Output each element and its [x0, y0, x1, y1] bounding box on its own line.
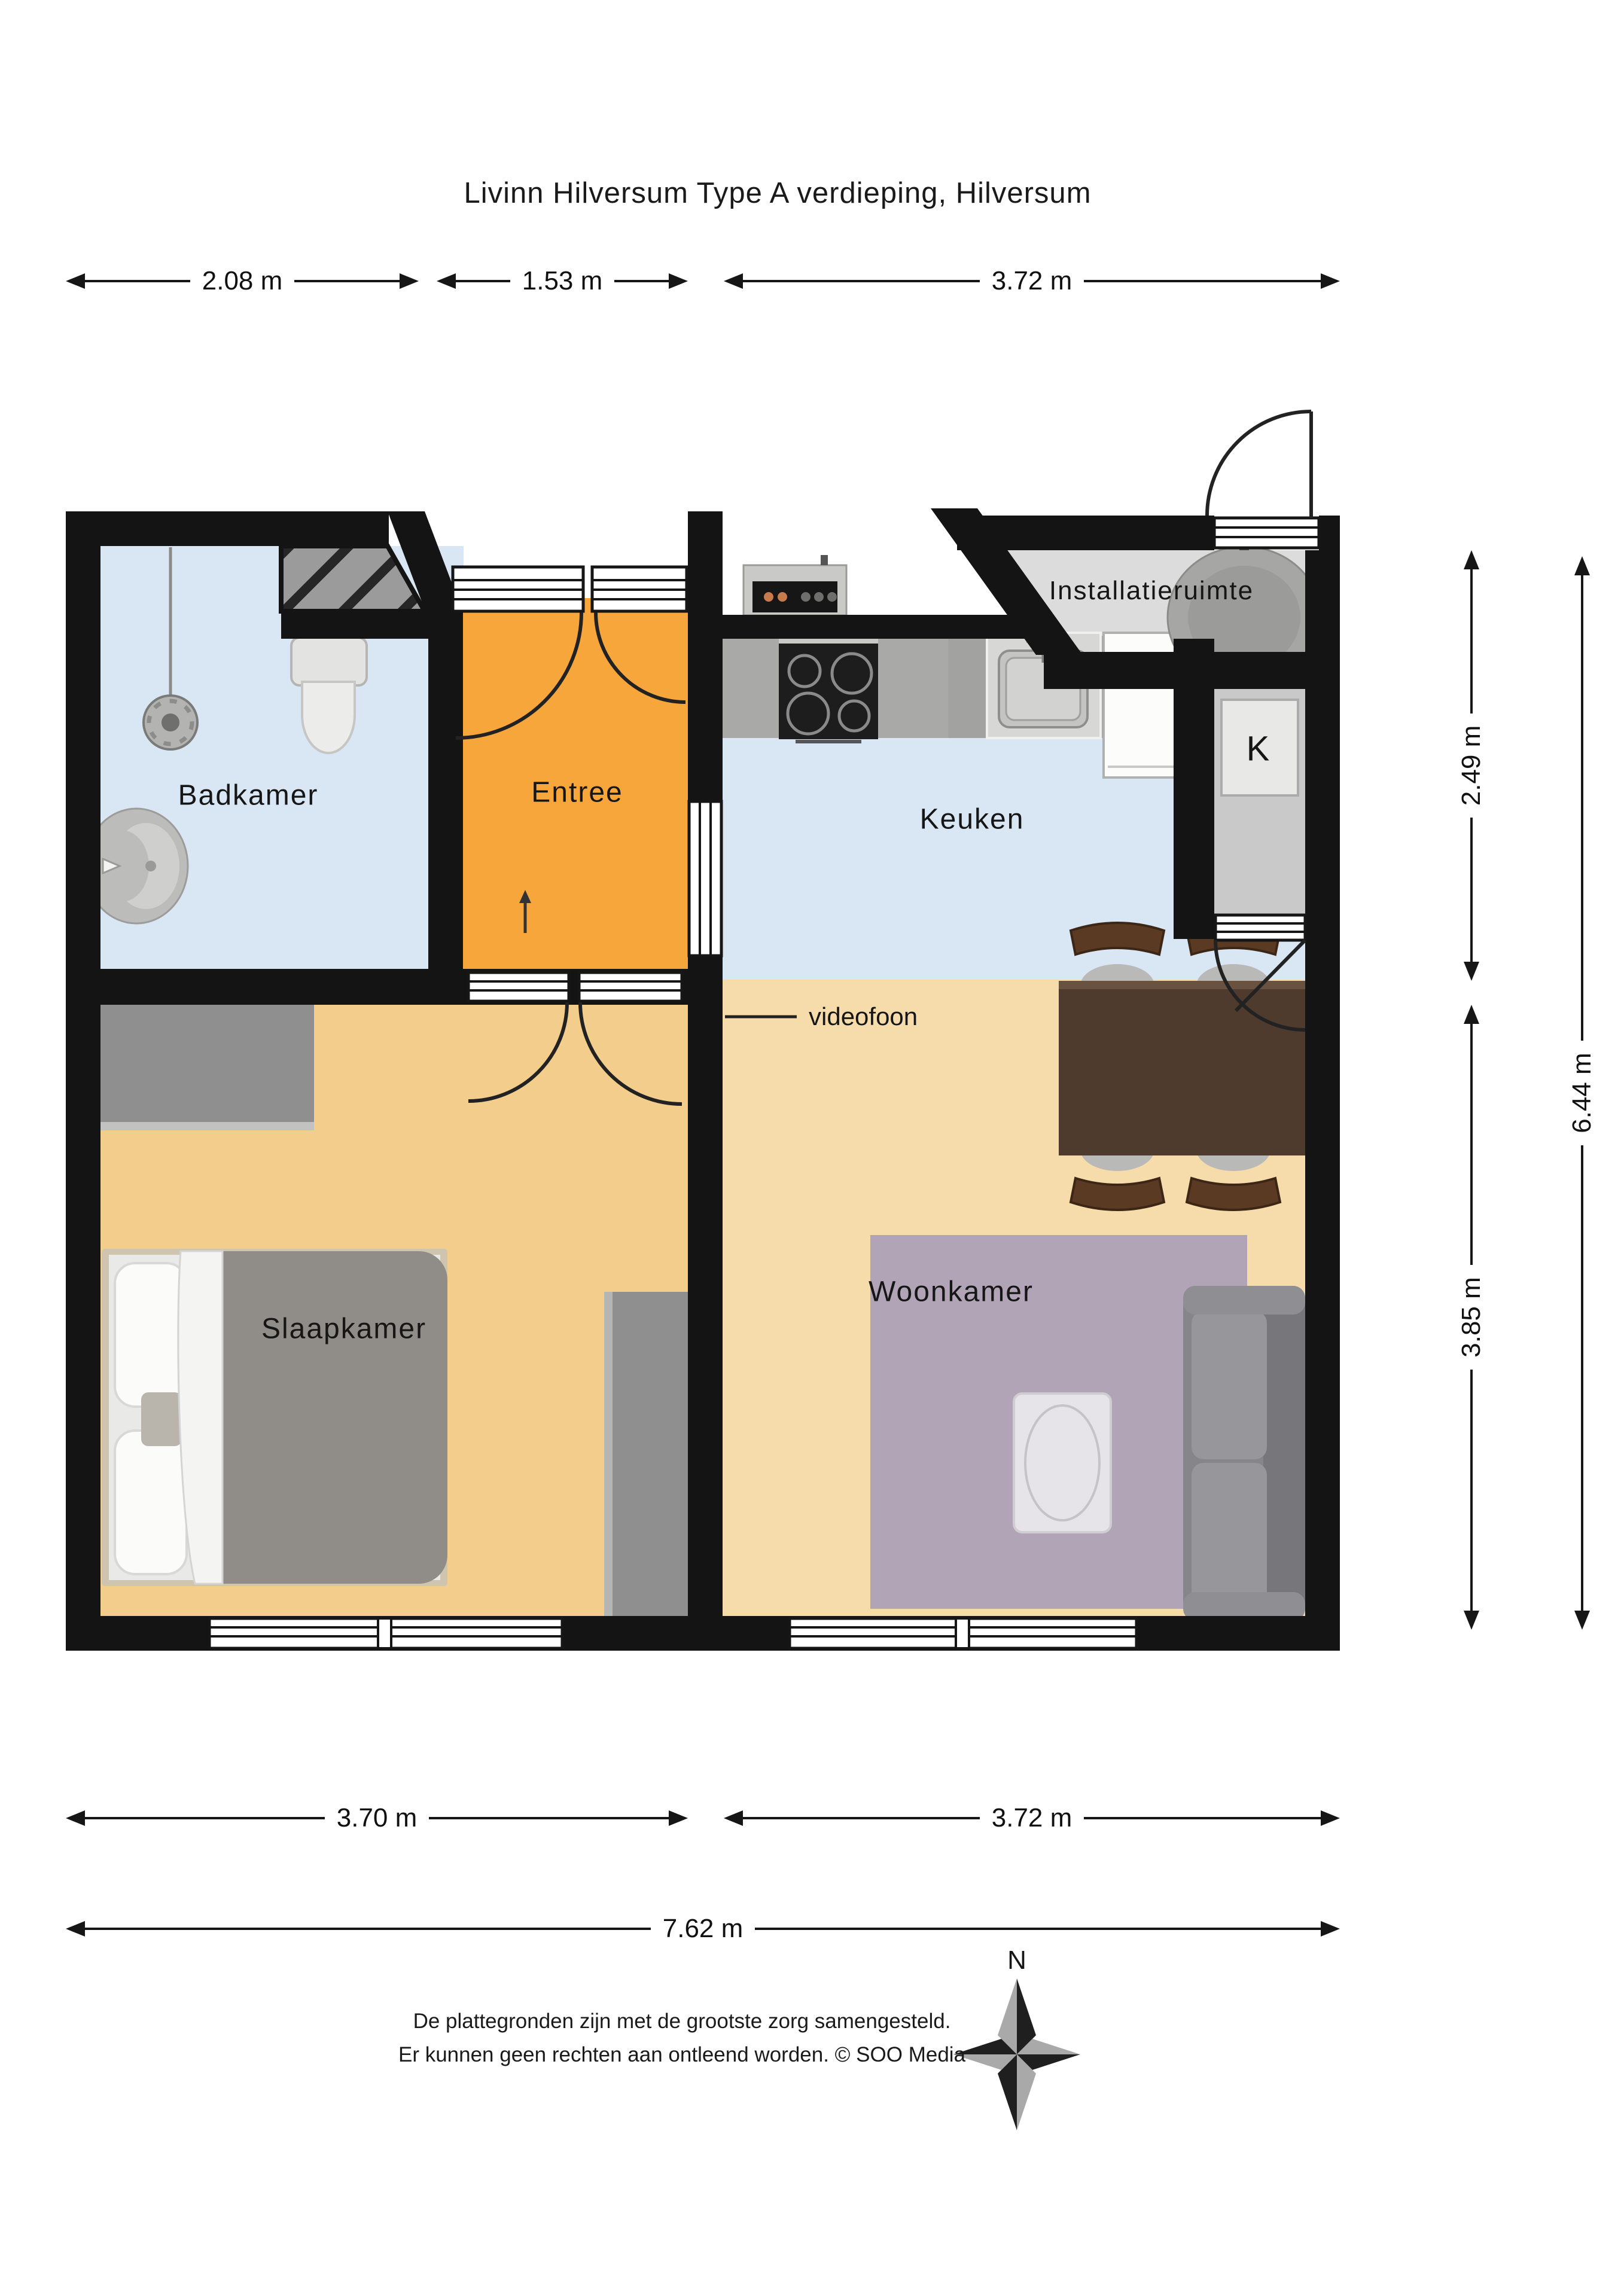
- wall-top-right-a: [957, 516, 1214, 550]
- pillow: [115, 1431, 187, 1574]
- toilet-tank: [291, 638, 367, 685]
- dim-right-249: 2.49 m: [1458, 550, 1485, 981]
- disclaimer-line-2: Er kunnen geen rechten aan ontleend word…: [323, 2038, 1041, 2072]
- wall-closet-left: [1174, 639, 1214, 939]
- arrow-right-icon: [1321, 273, 1340, 289]
- room-label-badkamer: Badkamer: [178, 779, 319, 812]
- dim-right-644: 6.44 m: [1569, 556, 1595, 1630]
- arrow-left-icon: [724, 273, 743, 289]
- dim-label: 6.44 m: [1569, 1041, 1595, 1145]
- dim-bottom-2: 3.72 m: [724, 1805, 1340, 1831]
- wall-kitchen-top: [720, 615, 1037, 639]
- dim-bottom-1: 3.70 m: [66, 1805, 688, 1831]
- dim-label: 3.85 m: [1458, 1265, 1485, 1370]
- extractor-knob: [827, 592, 837, 602]
- kitchen-glass-panel: [689, 801, 721, 956]
- floorplan-drawing: [0, 0, 1624, 2296]
- toilet-bowl: [302, 682, 355, 753]
- dim-label: 1.53 m: [510, 268, 615, 294]
- dim-label: 7.62 m: [651, 1916, 755, 1942]
- extractor-knob: [801, 592, 811, 602]
- dim-label: 3.72 m: [980, 268, 1084, 294]
- wall-top-bathroom: [66, 511, 389, 546]
- sofa-cushion: [1192, 1311, 1267, 1459]
- entry-door: [1207, 411, 1319, 548]
- wall-left: [66, 511, 100, 1651]
- dim-label: 2.49 m: [1458, 714, 1485, 818]
- sofa-cushion: [1192, 1463, 1267, 1611]
- room-label-slaapkamer: Slaapkamer: [261, 1313, 426, 1346]
- room-label-kast: K: [1247, 729, 1271, 769]
- dim-label: 3.70 m: [325, 1805, 429, 1831]
- wall-right: [1305, 550, 1340, 1651]
- arrow-left-icon: [66, 273, 85, 289]
- wall-entree-left: [428, 610, 463, 1005]
- arrow-down-icon: [1574, 1611, 1590, 1630]
- arrow-right-icon: [400, 273, 419, 289]
- dining-table: [1059, 981, 1305, 1155]
- dining-table-highlight: [1059, 981, 1305, 989]
- wall-bedroom-livingroom: [688, 969, 723, 1616]
- dim-label: 2.08 m: [190, 268, 295, 294]
- arrow-right-icon: [669, 1810, 688, 1826]
- arrow-left-icon: [724, 1810, 743, 1826]
- extractor-knob: [814, 592, 824, 602]
- arrow-right-icon: [1321, 1921, 1340, 1937]
- disclaimer: De plattegronden zijn met de grootste zo…: [323, 2005, 1041, 2072]
- room-label-installatieruimte: Installatieruimte: [1049, 576, 1254, 606]
- bedroom-window: [209, 1618, 562, 1648]
- arrow-left-icon: [437, 273, 456, 289]
- dim-right-385: 3.85 m: [1458, 1005, 1485, 1630]
- entree-top-frames: [453, 567, 687, 611]
- page-title: Livinn Hilversum Type A verdieping, Hilv…: [0, 176, 1555, 210]
- sofa-back: [1263, 1295, 1305, 1612]
- arrow-up-icon: [1464, 550, 1479, 569]
- extractor-light: [764, 592, 773, 602]
- dim-top-1: 2.08 m: [66, 268, 419, 294]
- arrow-right-icon: [669, 273, 688, 289]
- extractor-vent-tick: [821, 555, 828, 565]
- arrow-up-icon: [1464, 1005, 1479, 1024]
- arrow-up-icon: [1574, 556, 1590, 575]
- extractor-light: [778, 592, 787, 602]
- washbasin-drain: [145, 861, 156, 871]
- floorplan-page: { "title": "Livinn Hilversum Type A verd…: [0, 0, 1624, 2296]
- arrow-left-icon: [66, 1810, 85, 1826]
- wardrobe-right-edge: [604, 1292, 613, 1616]
- wardrobe-top: [100, 1005, 314, 1122]
- sofa-armrest: [1183, 1286, 1305, 1315]
- arrow-right-icon: [1321, 1810, 1340, 1826]
- shower-head-center: [162, 714, 179, 731]
- pillow: [115, 1263, 187, 1407]
- coffee-table: [1014, 1394, 1111, 1532]
- wall-top-right-b: [1319, 516, 1340, 550]
- bed-runner: [141, 1392, 182, 1446]
- dim-top-2: 1.53 m: [437, 268, 688, 294]
- room-label-woonkamer: Woonkamer: [869, 1276, 1034, 1309]
- arrow-down-icon: [1464, 962, 1479, 981]
- wardrobe-right: [604, 1292, 688, 1616]
- wall-under-shower: [281, 611, 428, 639]
- videofoon-label: videofoon: [809, 1002, 918, 1031]
- room-label-keuken: Keuken: [920, 803, 1025, 836]
- bed-blanket: [215, 1251, 447, 1584]
- arrow-down-icon: [1464, 1611, 1479, 1630]
- wardrobe-top-edge: [100, 1122, 314, 1130]
- arrow-left-icon: [66, 1921, 85, 1937]
- livingroom-window: [790, 1618, 1137, 1648]
- dim-top-3: 3.72 m: [724, 268, 1340, 294]
- room-label-entree: Entree: [531, 776, 623, 809]
- disclaimer-line-1: De plattegronden zijn met de grootste zo…: [323, 2005, 1041, 2038]
- dim-bottom-total: 7.62 m: [66, 1916, 1340, 1942]
- dim-label: 3.72 m: [980, 1805, 1084, 1831]
- compass-north-label: N: [1007, 1946, 1026, 1975]
